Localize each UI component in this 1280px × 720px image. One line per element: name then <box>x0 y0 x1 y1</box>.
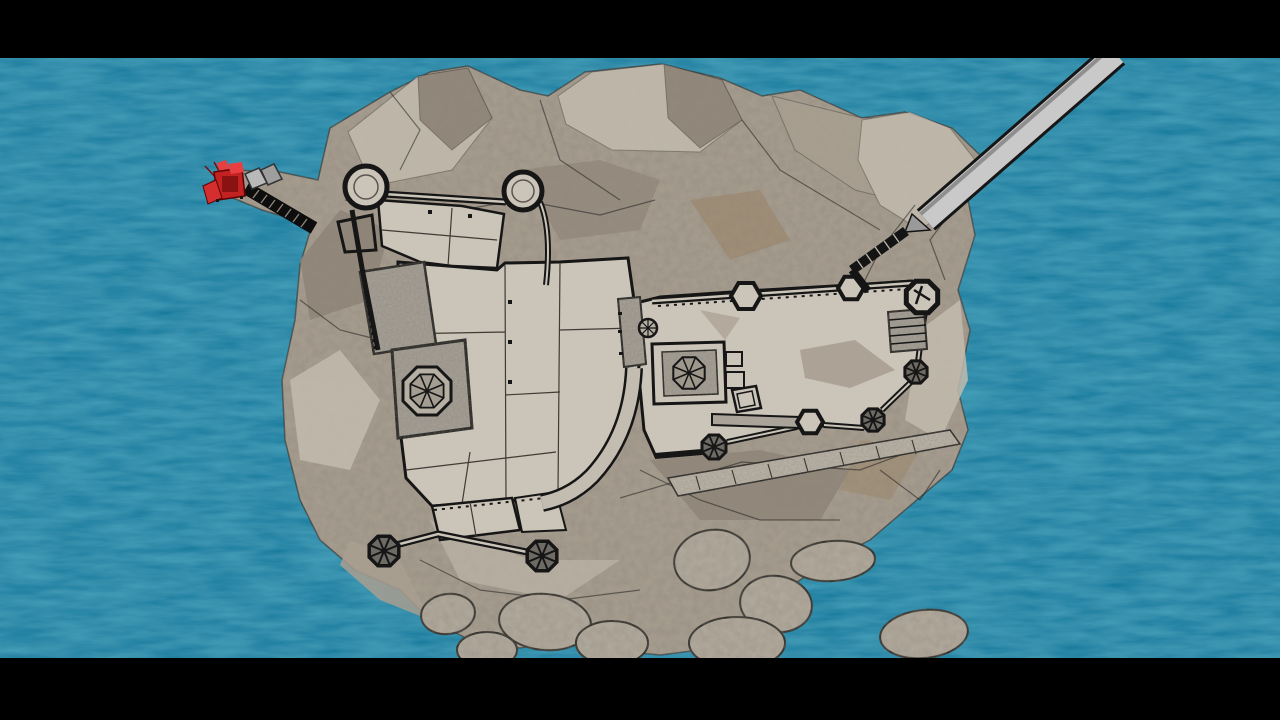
render-viewport[interactable] <box>0 0 1280 720</box>
letterbox-top <box>0 0 1280 58</box>
walkway <box>712 414 800 428</box>
tilted-annex <box>732 386 761 412</box>
letterbox-bottom <box>0 658 1280 720</box>
west-octagon-tower <box>392 340 472 438</box>
scene-canvas <box>0 0 1280 720</box>
ne-corner-tower <box>906 281 937 312</box>
ne-stair-block <box>888 309 927 352</box>
